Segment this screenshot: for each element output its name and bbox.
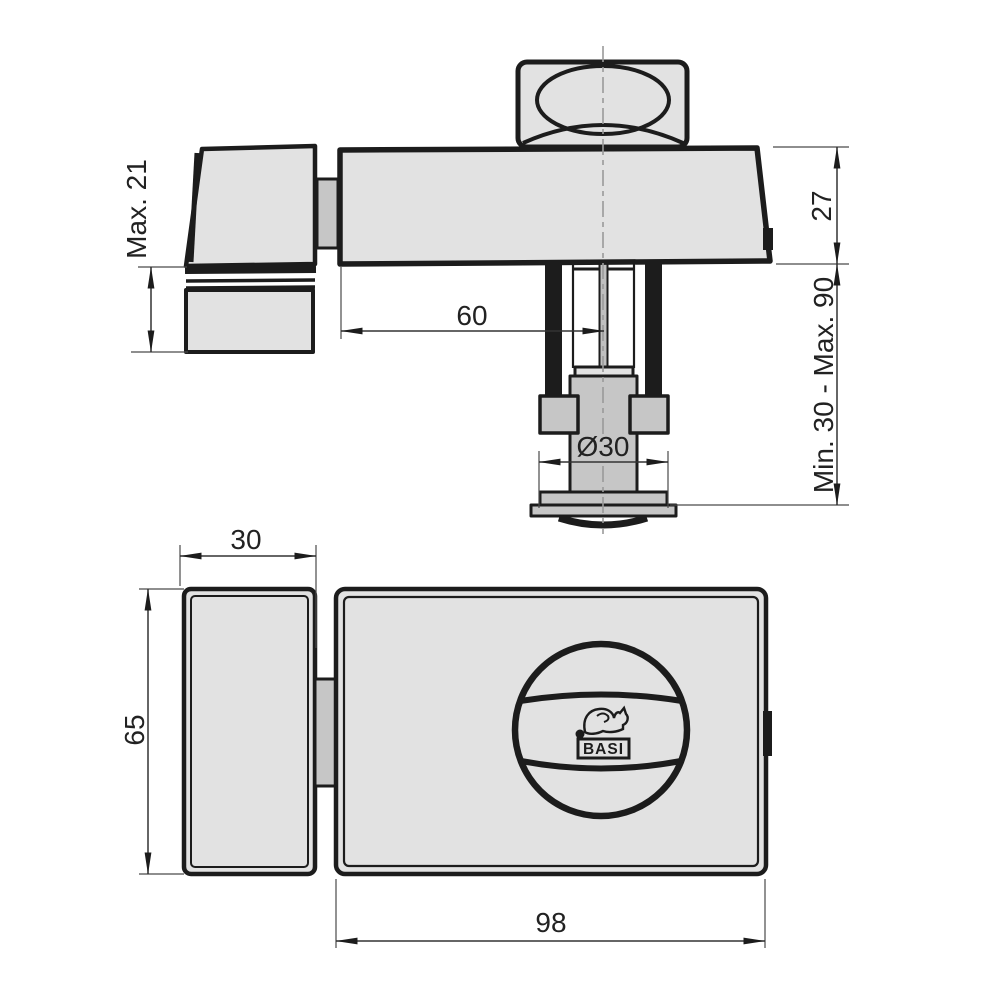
strike-box-lower bbox=[186, 290, 313, 352]
fixing-screw-right bbox=[645, 263, 662, 397]
knob-top-view bbox=[518, 62, 687, 147]
dimension-27: 27 bbox=[773, 147, 849, 264]
fixing-screw-left bbox=[545, 263, 562, 397]
dimension-60: 60 bbox=[341, 267, 604, 339]
dim-label-30: 30 bbox=[230, 524, 261, 555]
dim-label-65: 65 bbox=[119, 714, 150, 745]
knob-circle bbox=[515, 644, 687, 816]
strike-box-upper bbox=[186, 146, 315, 266]
lock-body-front-view: BASI bbox=[336, 589, 772, 874]
dim-label-27: 27 bbox=[806, 190, 837, 221]
dim-label-max21: Max. 21 bbox=[121, 159, 152, 259]
lion-ball-icon bbox=[576, 730, 585, 739]
lock-body-top-view bbox=[340, 148, 773, 264]
front-view: BASI bbox=[184, 589, 772, 874]
strike-box-front-view bbox=[184, 589, 315, 874]
bolt-top-view bbox=[317, 179, 338, 248]
dim-label-98: 98 bbox=[535, 907, 566, 938]
technical-drawing-page: Max. 21 27 Min. 30 - Max. 90 60 Ø30 bbox=[0, 0, 1000, 1000]
nut-right bbox=[630, 396, 668, 433]
top-view bbox=[185, 46, 773, 534]
turn-knob-front: BASI bbox=[515, 644, 687, 816]
strike-plate-band-2 bbox=[186, 280, 315, 281]
strike-plate-band-1 bbox=[185, 269, 316, 270]
dimension-max21: Max. 21 bbox=[121, 159, 188, 352]
bolt-front-view bbox=[315, 679, 336, 786]
dimension-65: 65 bbox=[119, 589, 184, 874]
nut-left bbox=[540, 396, 578, 433]
latch-tab-top-view bbox=[763, 228, 773, 250]
dimension-98: 98 bbox=[336, 879, 765, 948]
latch-tab-front-view bbox=[763, 711, 772, 756]
rim-lock-technical-drawing: Max. 21 27 Min. 30 - Max. 90 60 Ø30 bbox=[0, 0, 1000, 1000]
brand-label: BASI bbox=[583, 741, 624, 758]
strike-box-top-view bbox=[185, 146, 316, 352]
dim-label-60: 60 bbox=[456, 300, 487, 331]
dim-label-dia30: Ø30 bbox=[577, 431, 630, 462]
strike-box-front-outline bbox=[184, 589, 315, 874]
dim-label-door-range: Min. 30 - Max. 90 bbox=[808, 277, 839, 493]
strike-plate-band-3 bbox=[186, 287, 315, 288]
dimension-min30-max90: Min. 30 - Max. 90 bbox=[670, 264, 849, 505]
lock-body-top-outline bbox=[340, 148, 770, 264]
